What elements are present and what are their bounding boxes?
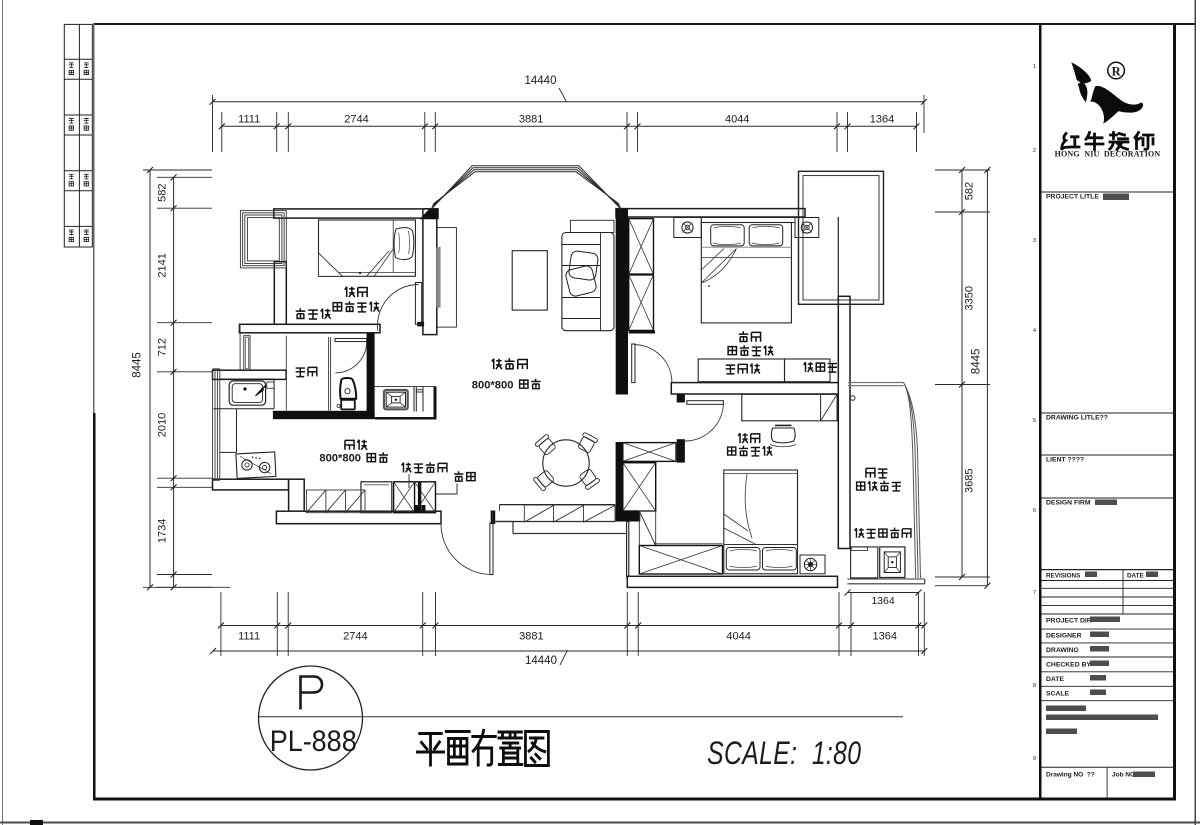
- svg-text:PL-888: PL-888: [270, 725, 357, 759]
- svg-text:582: 582: [964, 182, 976, 200]
- svg-text:DATE: DATE: [1046, 676, 1064, 683]
- svg-text:2744: 2744: [343, 631, 367, 643]
- svg-text:8445: 8445: [132, 352, 144, 378]
- svg-text:14440: 14440: [525, 75, 557, 87]
- svg-text:1: 1: [1033, 64, 1036, 70]
- svg-text:R: R: [1112, 64, 1122, 78]
- svg-text:4044: 4044: [726, 631, 750, 643]
- svg-text:3685: 3685: [964, 468, 976, 492]
- svg-text:9: 9: [1033, 756, 1036, 762]
- svg-text:DESIGNER: DESIGNER: [1046, 633, 1082, 640]
- svg-text:PROJECT DIR: PROJECT DIR: [1046, 618, 1092, 625]
- svg-text:1364: 1364: [870, 114, 894, 126]
- svg-text:800*800: 800*800: [472, 380, 514, 392]
- svg-text:1364: 1364: [871, 595, 895, 607]
- svg-text:4: 4: [1033, 328, 1036, 334]
- svg-text:8445: 8445: [971, 349, 983, 375]
- svg-text:CHECKED BY: CHECKED BY: [1046, 661, 1091, 668]
- svg-text:5: 5: [1033, 418, 1036, 424]
- svg-text:1111: 1111: [238, 631, 260, 643]
- svg-text:HONG NIU DECORATION: HONG NIU DECORATION: [1055, 150, 1161, 159]
- svg-text:3881: 3881: [519, 114, 543, 126]
- svg-text:REVISIONS: REVISIONS: [1046, 573, 1080, 580]
- svg-text:Drawing NO ??: Drawing NO ??: [1046, 772, 1095, 779]
- svg-text:582: 582: [157, 184, 169, 202]
- svg-text:14440: 14440: [525, 655, 557, 667]
- svg-text:2010: 2010: [157, 413, 169, 437]
- svg-text:712: 712: [157, 338, 169, 356]
- svg-text:DATE: DATE: [1127, 573, 1144, 580]
- svg-text:PROJECT LITLE: PROJECT LITLE: [1046, 194, 1099, 201]
- svg-text:DESIGN FIRM: DESIGN FIRM: [1046, 500, 1091, 507]
- svg-text:2141: 2141: [157, 253, 169, 277]
- svg-text:3881: 3881: [519, 631, 543, 643]
- svg-text:DRAWING: DRAWING: [1046, 647, 1079, 654]
- svg-text:SCALE: 1:80: SCALE: 1:80: [707, 736, 861, 772]
- svg-text:LIENT ????: LIENT ????: [1046, 457, 1084, 464]
- svg-text:2744: 2744: [344, 114, 368, 126]
- svg-text:1111: 1111: [238, 114, 260, 126]
- svg-text:6: 6: [1033, 508, 1036, 514]
- svg-text:2: 2: [1033, 148, 1036, 154]
- svg-text:Job NO: Job NO: [1112, 772, 1135, 779]
- svg-text:DRAWING LITLE??: DRAWING LITLE??: [1046, 415, 1108, 422]
- svg-text:8: 8: [1033, 683, 1036, 689]
- svg-text:1734: 1734: [157, 519, 169, 543]
- svg-text:SCALE: SCALE: [1046, 690, 1070, 697]
- svg-text:7: 7: [1033, 590, 1036, 596]
- svg-text:3350: 3350: [964, 286, 976, 310]
- svg-text:800*800: 800*800: [319, 453, 361, 465]
- svg-text:4044: 4044: [725, 114, 749, 126]
- svg-text:3: 3: [1033, 238, 1036, 244]
- svg-text:1364: 1364: [873, 631, 897, 643]
